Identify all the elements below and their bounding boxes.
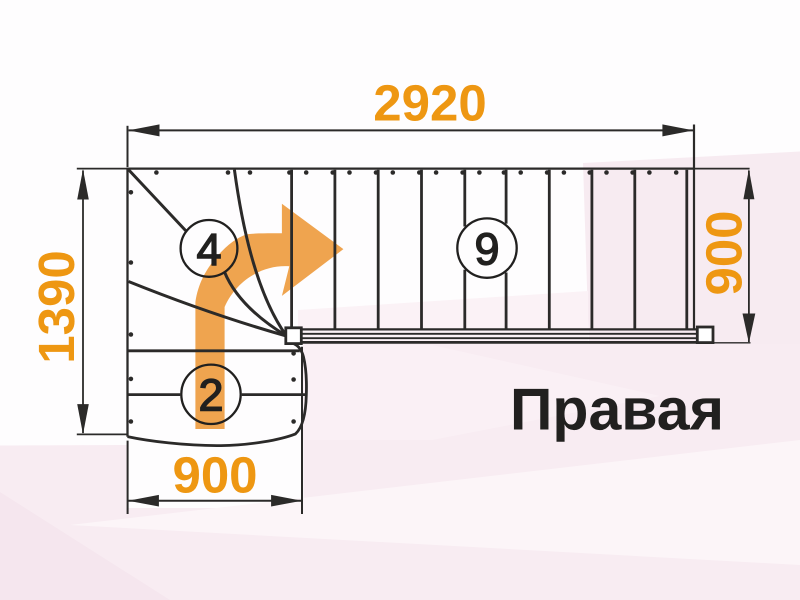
svg-text:900: 900: [696, 210, 753, 295]
svg-text:4: 4: [196, 224, 221, 275]
svg-text:1390: 1390: [28, 250, 85, 363]
svg-text:2: 2: [198, 370, 223, 421]
svg-text:2920: 2920: [373, 75, 486, 132]
svg-text:900: 900: [172, 447, 257, 504]
svg-text:Правая: Правая: [510, 377, 724, 443]
svg-text:9: 9: [474, 224, 499, 275]
